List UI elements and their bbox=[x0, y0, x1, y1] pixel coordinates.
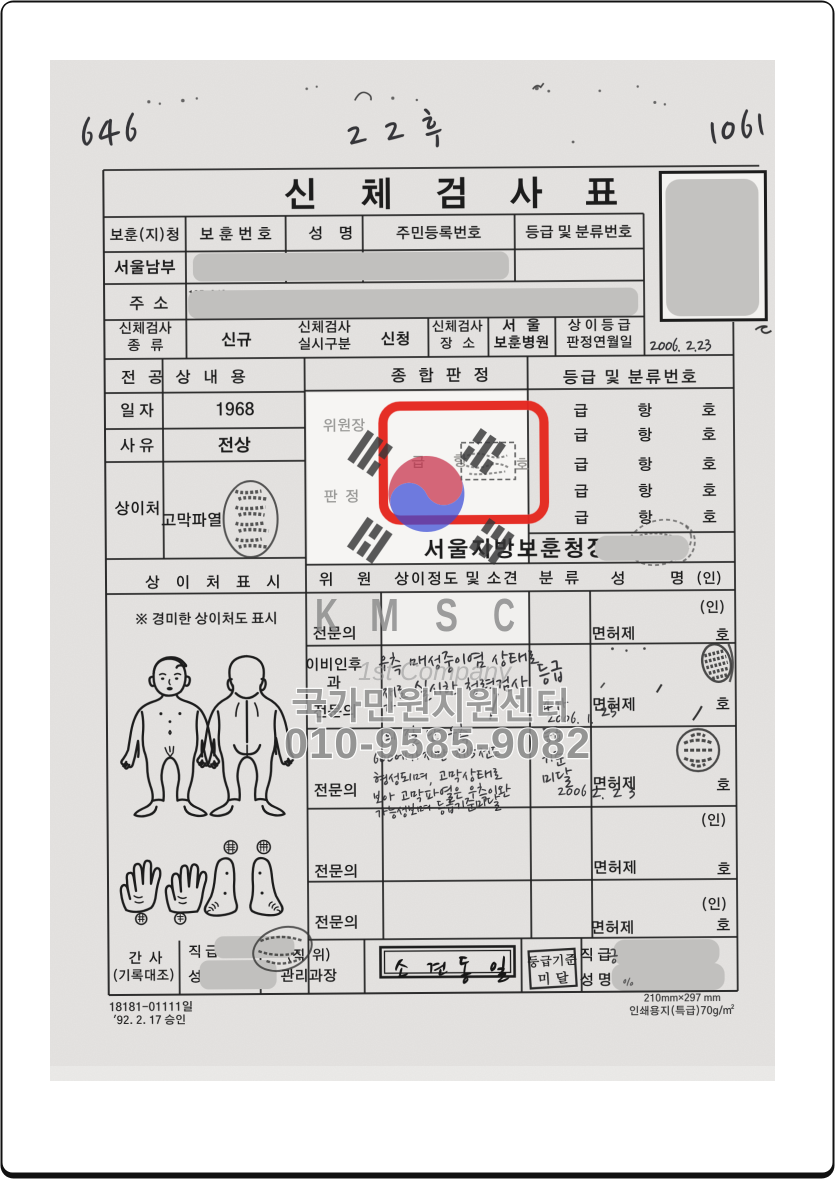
svg-text:1st Company: 1st Company bbox=[358, 656, 513, 686]
svg-text:010-9585-9082: 010-9585-9082 bbox=[284, 720, 591, 768]
svg-text:S: S bbox=[435, 589, 458, 641]
svg-text:C: C bbox=[493, 589, 515, 641]
svg-text:M: M bbox=[370, 589, 399, 641]
svg-text:K: K bbox=[315, 589, 338, 641]
